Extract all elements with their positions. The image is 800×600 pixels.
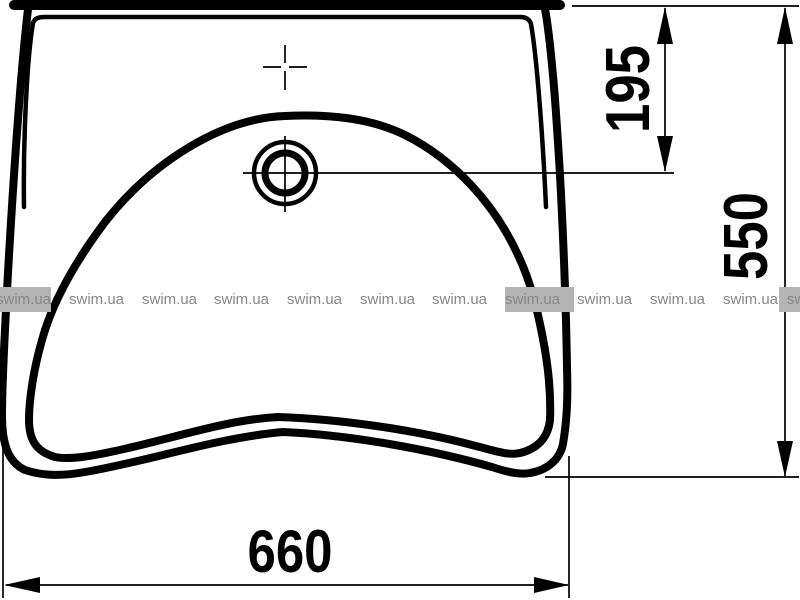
watermark-text: swim.ua — [723, 287, 778, 312]
watermark-text: swim.ua — [505, 287, 574, 312]
dimension-tap-to-drain-label: 195 — [598, 45, 660, 133]
arrow-left-icon — [4, 577, 40, 593]
watermark-text: swim.ua — [432, 287, 487, 312]
arrow-up-icon — [777, 7, 793, 44]
watermark-text: swim.ua — [360, 287, 415, 312]
washbasin-technical-drawing: 660 195 550 swim.uaswim.uaswim.uaswim.ua… — [0, 0, 800, 600]
dimension-height-label: 550 — [716, 192, 778, 280]
faucet-center-mark — [263, 45, 307, 90]
watermark-text: swim.ua — [287, 287, 342, 312]
watermark-text: swim.ua — [69, 287, 124, 312]
drain-hole — [254, 136, 316, 212]
dimension-width-label: 660 — [247, 522, 332, 582]
watermark-text: swim.ua — [0, 287, 51, 312]
arrow-right-icon — [534, 577, 569, 593]
watermark-text: swim.ua — [650, 287, 705, 312]
watermark-text: swim.ua — [779, 287, 800, 312]
watermark-text: swim.ua — [214, 287, 269, 312]
arrow-down-icon — [657, 136, 673, 172]
arrow-down-icon — [777, 441, 793, 477]
arrow-up-icon — [657, 7, 673, 44]
watermark-text: swim.ua — [577, 287, 632, 312]
watermark-row: swim.uaswim.uaswim.uaswim.uaswim.uaswim.… — [0, 287, 800, 312]
watermark-text: swim.ua — [142, 287, 197, 312]
